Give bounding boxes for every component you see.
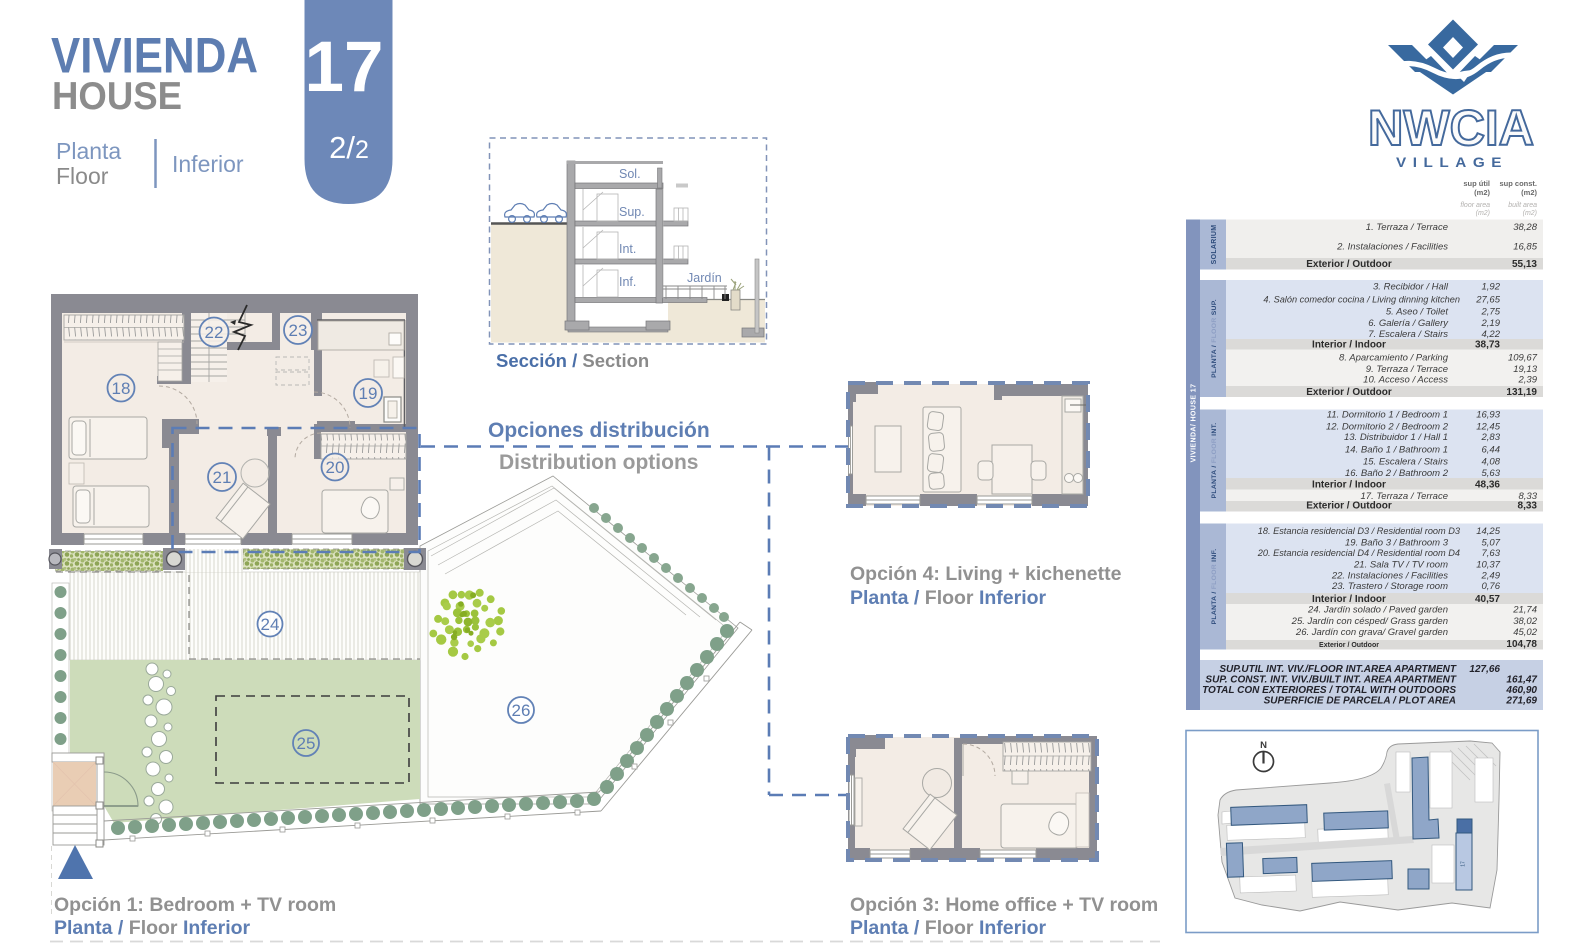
svg-text:5,07: 5,07 xyxy=(1482,537,1501,548)
svg-text:Interior / Indoor: Interior / Indoor xyxy=(1312,479,1386,490)
svg-text:Sup.: Sup. xyxy=(619,205,645,219)
svg-text:2,19: 2,19 xyxy=(1481,318,1501,329)
svg-text:8,33: 8,33 xyxy=(1518,501,1538,512)
svg-text:45,02: 45,02 xyxy=(1513,627,1537,638)
svg-text:2,39: 2,39 xyxy=(1518,374,1538,385)
svg-text:4,22: 4,22 xyxy=(1482,329,1501,340)
svg-text:22. Instalaciones / Facilities: 22. Instalaciones / Facilities xyxy=(1331,570,1448,581)
svg-text:38,28: 38,28 xyxy=(1513,222,1537,233)
svg-text:4,08: 4,08 xyxy=(1482,457,1501,468)
svg-text:Opciones distribución: Opciones distribución xyxy=(488,419,710,442)
svg-text:20: 20 xyxy=(326,458,345,477)
svg-text:27,65: 27,65 xyxy=(1475,295,1500,306)
svg-text:460,90: 460,90 xyxy=(1505,685,1537,696)
svg-text:PLANTA / FLOOR INF.: PLANTA / FLOOR INF. xyxy=(1211,549,1218,625)
svg-text:Floor: Floor xyxy=(56,163,109,189)
svg-text:25: 25 xyxy=(297,734,316,753)
svg-text:10. Acceso / Access: 10. Acceso / Access xyxy=(1363,374,1448,385)
svg-text:Exterior / Outdoor: Exterior / Outdoor xyxy=(1306,387,1392,398)
svg-text:104,78: 104,78 xyxy=(1506,639,1537,650)
svg-text:2,83: 2,83 xyxy=(1481,432,1501,443)
svg-text:8. Aparcamiento / Parking: 8. Aparcamiento / Parking xyxy=(1339,353,1449,364)
svg-text:15. Escalera / Stairs: 15. Escalera / Stairs xyxy=(1363,457,1448,468)
svg-text:N: N xyxy=(1260,740,1267,751)
svg-text:24. Jardín solado / Paved gard: 24. Jardín solado / Paved garden xyxy=(1307,605,1448,616)
svg-text:16,93: 16,93 xyxy=(1476,409,1500,420)
svg-text:SUPERFICIE DE PARCELA / PLOT A: SUPERFICIE DE PARCELA / PLOT AREA xyxy=(1264,696,1456,707)
svg-text:floor area: floor area xyxy=(1460,202,1490,209)
svg-text:7,63: 7,63 xyxy=(1482,548,1501,559)
svg-text:Planta / Floor Inferior: Planta / Floor Inferior xyxy=(850,587,1047,609)
svg-text:Opción 1: Bedroom + TV room: Opción 1: Bedroom + TV room xyxy=(54,894,336,916)
svg-text:SOLARIUM: SOLARIUM xyxy=(1211,225,1218,265)
svg-text:11. Dormitorio 1 / Bedroom 1: 11. Dormitorio 1 / Bedroom 1 xyxy=(1327,409,1448,420)
svg-text:25. Jardín con césped/ Grass g: 25. Jardín con césped/ Grass garden xyxy=(1291,616,1448,627)
svg-text:19,13: 19,13 xyxy=(1513,364,1537,375)
svg-text:17: 17 xyxy=(1461,861,1467,867)
svg-text:Exterior / Outdoor: Exterior / Outdoor xyxy=(1306,501,1392,512)
svg-text:SUP.UTIL INT. VIV./FLOOR INT.A: SUP.UTIL INT. VIV./FLOOR INT.AREA APARTM… xyxy=(1219,664,1457,675)
svg-text:14. Baño 1 / Bathroom 1: 14. Baño 1 / Bathroom 1 xyxy=(1345,444,1448,455)
svg-text:109,67: 109,67 xyxy=(1508,353,1538,364)
svg-text:TOTAL CON EXTERIORES / TOTAL W: TOTAL CON EXTERIORES / TOTAL WITH OUTDOO… xyxy=(1202,685,1456,696)
svg-text:55,13: 55,13 xyxy=(1512,259,1537,270)
svg-text:(m2): (m2) xyxy=(1523,210,1537,217)
svg-text:10,37: 10,37 xyxy=(1476,559,1500,570)
svg-text:Interior / Indoor: Interior / Indoor xyxy=(1312,594,1386,605)
svg-text:2. Instalaciones / Facilities: 2. Instalaciones / Facilities xyxy=(1336,242,1448,253)
svg-text:161,47: 161,47 xyxy=(1506,675,1537,686)
svg-text:Exterior / Outdoor: Exterior / Outdoor xyxy=(1306,259,1392,270)
svg-text:20. Estancia residencial D4 /: 20. Estancia residencial D4 / Residentia… xyxy=(1257,548,1460,558)
svg-text:23: 23 xyxy=(289,321,308,340)
svg-text:16. Baño 2 / Bathroom 2: 16. Baño 2 / Bathroom 2 xyxy=(1345,468,1449,479)
svg-text:9. Terraza / Terrace: 9. Terraza / Terrace xyxy=(1366,364,1448,375)
svg-text:1. Terraza / Terrace: 1. Terraza / Terrace xyxy=(1366,222,1448,233)
svg-text:4. Salón comedor cocina / Livi: 4. Salón comedor cocina / Living dinning… xyxy=(1263,295,1460,305)
svg-text:Planta: Planta xyxy=(56,138,121,164)
svg-text:127,66: 127,66 xyxy=(1469,664,1500,675)
svg-text:Opción 4: Living + kichenette: Opción 4: Living + kichenette xyxy=(850,563,1122,585)
svg-text:Interior / Indoor: Interior / Indoor xyxy=(1312,340,1386,351)
svg-text:19: 19 xyxy=(359,384,378,403)
svg-text:Inferior: Inferior xyxy=(172,151,244,177)
svg-text:6,44: 6,44 xyxy=(1482,444,1501,455)
svg-text:PLANTA / FLOOR INT.: PLANTA / FLOOR INT. xyxy=(1211,423,1218,499)
svg-text:HOUSE: HOUSE xyxy=(52,75,182,118)
svg-text:18. Estancia residencial D3 /: 18. Estancia residencial D3 / Residentia… xyxy=(1258,526,1461,536)
svg-text:19. Baño 3 / Bathroom 3: 19. Baño 3 / Bathroom 3 xyxy=(1345,537,1449,548)
svg-text:VILLAGE: VILLAGE xyxy=(1396,154,1508,170)
svg-text:22: 22 xyxy=(205,323,224,342)
svg-text:1,92: 1,92 xyxy=(1482,282,1501,293)
svg-text:26: 26 xyxy=(512,701,531,720)
svg-text:131,19: 131,19 xyxy=(1506,387,1537,398)
svg-text:12,45: 12,45 xyxy=(1476,422,1500,433)
svg-text:Sección / Section: Sección / Section xyxy=(496,350,649,371)
svg-text:38,73: 38,73 xyxy=(1475,340,1500,351)
svg-text:13. Distribuidor 1 / Hall 1: 13. Distribuidor 1 / Hall 1 xyxy=(1344,432,1448,443)
svg-text:21. Sala TV / TV room: 21. Sala TV / TV room xyxy=(1353,559,1448,570)
svg-text:7. Escalera / Stairs: 7. Escalera / Stairs xyxy=(1368,329,1448,340)
svg-text:38,02: 38,02 xyxy=(1513,616,1537,627)
svg-text:Sol.: Sol. xyxy=(619,167,641,181)
svg-text:Exterior / Outdoor: Exterior / Outdoor xyxy=(1319,642,1379,649)
svg-text:Planta / Floor Inferior: Planta / Floor Inferior xyxy=(850,917,1047,939)
svg-text:5. Aseo / Toilet: 5. Aseo / Toilet xyxy=(1386,307,1449,318)
svg-text:21,74: 21,74 xyxy=(1512,605,1537,616)
svg-text:14,25: 14,25 xyxy=(1476,526,1500,537)
svg-text:VIVIENDA/ HOUSE 17: VIVIENDA/ HOUSE 17 xyxy=(1191,384,1198,463)
svg-text:18: 18 xyxy=(112,379,131,398)
svg-text:2,49: 2,49 xyxy=(1481,570,1501,581)
svg-text:NWCIA: NWCIA xyxy=(1368,100,1534,156)
svg-text:(m2): (m2) xyxy=(1474,188,1490,197)
svg-text:12. Dormitorio 2 / Bedroom 2: 12. Dormitorio 2 / Bedroom 2 xyxy=(1326,422,1449,433)
svg-text:sup const.: sup const. xyxy=(1499,179,1537,188)
svg-text:Inf.: Inf. xyxy=(619,275,636,289)
svg-text:16,85: 16,85 xyxy=(1513,242,1537,253)
svg-text:sup útil: sup útil xyxy=(1463,179,1490,188)
svg-text:Distribution options: Distribution options xyxy=(499,451,698,474)
svg-text:Opción 3: Home office + TV roo: Opción 3: Home office + TV room xyxy=(850,894,1158,916)
svg-text:21: 21 xyxy=(213,468,232,487)
svg-text:(m2): (m2) xyxy=(1521,188,1537,197)
svg-text:40,57: 40,57 xyxy=(1475,594,1500,605)
svg-text:23. Trastero / Storage room: 23. Trastero / Storage room xyxy=(1331,581,1448,592)
svg-text:built area: built area xyxy=(1508,202,1537,209)
svg-text:Planta / Floor Inferior: Planta / Floor Inferior xyxy=(54,917,251,939)
svg-text:17: 17 xyxy=(305,28,384,107)
svg-text:PLANTA / FLOOR SUP.: PLANTA / FLOOR SUP. xyxy=(1211,299,1218,378)
svg-text:271,69: 271,69 xyxy=(1505,696,1537,707)
svg-text:48,36: 48,36 xyxy=(1475,479,1500,490)
svg-text:(m2): (m2) xyxy=(1476,210,1490,217)
svg-text:5,63: 5,63 xyxy=(1482,468,1501,479)
svg-text:Jardín: Jardín xyxy=(687,271,722,285)
svg-text:26. Jardín con grava/ Gravel g: 26. Jardín con grava/ Gravel garden xyxy=(1295,627,1448,638)
svg-text:Int.: Int. xyxy=(619,242,636,256)
svg-text:0,76: 0,76 xyxy=(1482,581,1501,592)
svg-text:2,75: 2,75 xyxy=(1481,307,1501,318)
svg-text:2/2: 2/2 xyxy=(329,130,369,165)
svg-text:3. Recibidor / Hall: 3. Recibidor / Hall xyxy=(1373,282,1449,293)
svg-text:6. Galería / Gallery: 6. Galería / Gallery xyxy=(1368,318,1449,329)
svg-text:SUP. CONST. INT. VIV./BUILT IN: SUP. CONST. INT. VIV./BUILT INT. AREA AP… xyxy=(1205,675,1456,686)
svg-text:24: 24 xyxy=(261,615,280,634)
